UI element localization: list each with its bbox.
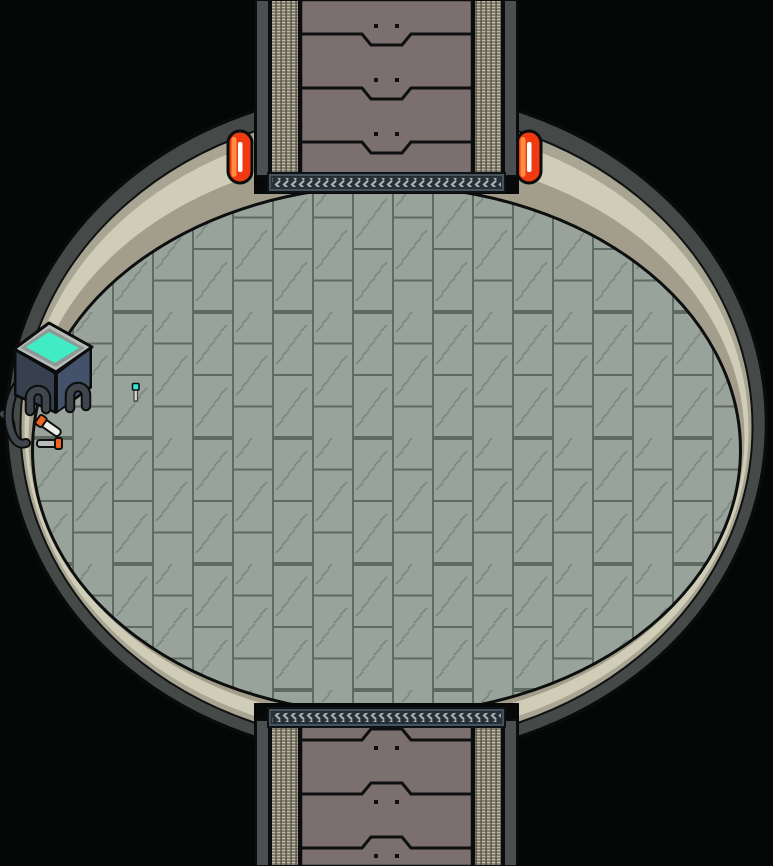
probe-pin[interactable]	[133, 384, 140, 402]
wall-lamp-left[interactable]	[228, 131, 252, 183]
corridor-side-wall-left	[256, 0, 269, 176]
game-viewport	[0, 0, 773, 866]
threshold-chevrons	[272, 713, 501, 722]
corridor-side-wall-left	[256, 720, 269, 866]
corridor-south	[254, 703, 519, 866]
threshold-chevrons	[272, 178, 501, 187]
lamp-slit	[527, 142, 532, 172]
wall-lamp-right[interactable]	[517, 131, 541, 183]
vial-horizontal[interactable]	[37, 438, 62, 449]
threshold-south[interactable]	[267, 707, 506, 728]
chamber-floor[interactable]	[33, 186, 741, 714]
mesh-grate-left	[271, 726, 299, 866]
lamp-glow-edge	[521, 137, 526, 177]
mesh-grate-left	[271, 0, 299, 174]
mesh-grate-right	[474, 726, 502, 866]
vial-cap	[55, 438, 62, 449]
probe-head	[133, 384, 140, 391]
corridor-side-wall-right	[504, 0, 517, 176]
mesh-grate-right	[474, 0, 502, 174]
lamp-slit	[238, 142, 243, 172]
corridor-north	[254, 0, 519, 194]
corridor-door-panel	[301, 726, 472, 866]
corridor-side-wall-right	[504, 720, 517, 866]
threshold-north[interactable]	[267, 172, 506, 193]
lamp-glow-edge	[232, 137, 237, 177]
